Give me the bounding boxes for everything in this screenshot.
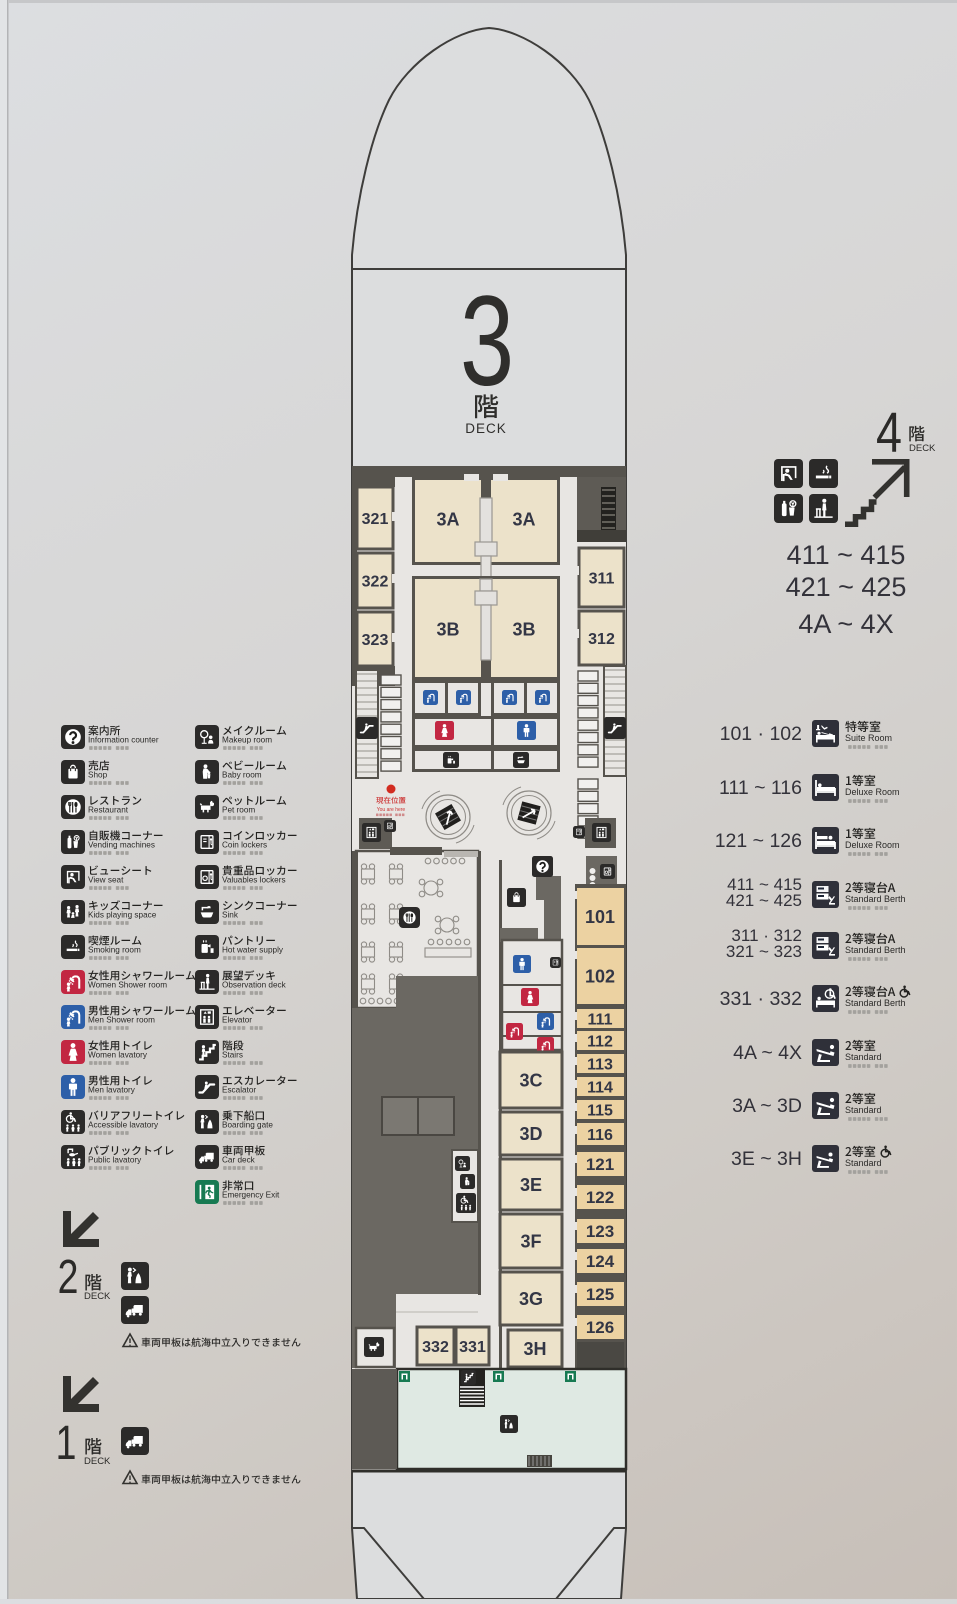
svg-text:3: 3 (460, 270, 514, 413)
svg-text:123: 123 (586, 1222, 614, 1241)
svg-text:Pet room: Pet room (222, 806, 255, 815)
svg-text:Car deck: Car deck (222, 1156, 256, 1165)
svg-text:121 ~ 126: 121 ~ 126 (715, 830, 802, 852)
svg-text:421 ~ 425: 421 ~ 425 (726, 891, 802, 910)
svg-text:3A: 3A (436, 509, 459, 529)
svg-text:Elevator: Elevator (222, 1016, 252, 1025)
svg-text:Men Shower room: Men Shower room (88, 1016, 155, 1025)
svg-text:312: 312 (588, 631, 615, 648)
svg-text:Smoking room: Smoking room (88, 946, 141, 955)
svg-text:3A ~ 3D: 3A ~ 3D (732, 1095, 802, 1117)
svg-text:Information counter: Information counter (88, 736, 159, 745)
svg-text:3H: 3H (523, 1339, 546, 1359)
svg-text:Deluxe Room: Deluxe Room (845, 840, 900, 850)
svg-text:DECK: DECK (909, 443, 936, 454)
svg-text:111 ~ 116: 111 ~ 116 (719, 777, 802, 799)
svg-text:Accessible lavatory: Accessible lavatory (88, 1121, 159, 1130)
svg-text:Boarding gate: Boarding gate (222, 1121, 273, 1130)
svg-text:322: 322 (362, 573, 389, 590)
svg-text:Sink: Sink (222, 911, 239, 920)
svg-text:Makeup room: Makeup room (222, 736, 272, 745)
svg-text:116: 116 (587, 1127, 613, 1144)
svg-text:Hot water supply: Hot water supply (222, 946, 284, 955)
svg-text:115: 115 (587, 1102, 613, 1119)
svg-text:Emergency Exit: Emergency Exit (222, 1191, 280, 1200)
svg-text:Standard: Standard (845, 1158, 882, 1168)
svg-text:3G: 3G (519, 1289, 543, 1309)
svg-text:You are here: You are here (377, 807, 406, 813)
svg-text:101 · 102: 101 · 102 (720, 723, 802, 745)
svg-text:332: 332 (422, 1339, 449, 1356)
svg-text:122: 122 (586, 1188, 614, 1207)
svg-text:323: 323 (362, 632, 389, 649)
svg-text:Valuables lockers: Valuables lockers (222, 876, 286, 885)
svg-text:Standard: Standard (845, 1052, 882, 1062)
svg-text:126: 126 (586, 1318, 614, 1337)
svg-text:4A ~ 4X: 4A ~ 4X (733, 1042, 802, 1064)
svg-text:4A ~ 4X: 4A ~ 4X (798, 609, 893, 639)
svg-text:View seat: View seat (88, 876, 124, 885)
svg-text:Women Shower room: Women Shower room (88, 981, 167, 990)
svg-text:Vending machines: Vending machines (88, 841, 155, 850)
svg-text:Women lavatory: Women lavatory (88, 1051, 148, 1060)
svg-text:Standard Berth: Standard Berth (845, 894, 906, 904)
svg-text:3C: 3C (519, 1070, 542, 1090)
svg-text:Standard: Standard (845, 1105, 882, 1115)
svg-text:3B: 3B (436, 619, 459, 639)
svg-text:113: 113 (587, 1056, 613, 1073)
svg-text:3B: 3B (512, 619, 535, 639)
svg-text:121: 121 (586, 1155, 614, 1174)
svg-text:112: 112 (587, 1033, 613, 1050)
svg-text:DECK: DECK (465, 421, 507, 436)
svg-text:321 ~ 323: 321 ~ 323 (726, 942, 802, 961)
svg-text:331: 331 (459, 1339, 486, 1356)
svg-text:4: 4 (876, 402, 902, 465)
svg-text:102: 102 (585, 966, 615, 986)
svg-text:Suite Room: Suite Room (845, 733, 892, 743)
svg-text:DECK: DECK (84, 1456, 111, 1467)
svg-text:3E: 3E (520, 1175, 542, 1195)
svg-text:Men lavatory: Men lavatory (88, 1086, 136, 1095)
svg-text:3D: 3D (519, 1124, 542, 1144)
svg-text:Observation deck: Observation deck (222, 981, 287, 990)
svg-text:124: 124 (586, 1252, 615, 1271)
svg-text:Restaurant: Restaurant (88, 806, 129, 815)
svg-text:Kids playing space: Kids playing space (88, 911, 157, 920)
svg-text:3E ~ 3H: 3E ~ 3H (731, 1148, 802, 1170)
svg-text:Escalator: Escalator (222, 1086, 256, 1095)
svg-text:DECK: DECK (84, 1291, 111, 1302)
svg-text:114: 114 (587, 1079, 613, 1096)
svg-text:101: 101 (585, 907, 615, 927)
svg-text:321: 321 (362, 511, 389, 528)
svg-text:1: 1 (56, 1417, 77, 1471)
svg-text:Baby room: Baby room (222, 771, 262, 780)
svg-text:3A: 3A (512, 509, 535, 529)
svg-text:311: 311 (589, 570, 615, 587)
svg-text:Standard Berth: Standard Berth (845, 998, 906, 1008)
svg-text:Shop: Shop (88, 771, 108, 780)
svg-text:Coin lockers: Coin lockers (222, 841, 267, 850)
svg-text:Public lavatory: Public lavatory (88, 1156, 142, 1165)
svg-text:Standard Berth: Standard Berth (845, 945, 906, 955)
svg-text:411 ~ 415: 411 ~ 415 (787, 540, 906, 570)
svg-text:3F: 3F (520, 1231, 541, 1251)
svg-text:125: 125 (586, 1285, 614, 1304)
svg-text:2: 2 (58, 1251, 79, 1305)
svg-text:111: 111 (588, 1011, 613, 1028)
svg-text:Stairs: Stairs (222, 1051, 243, 1060)
svg-text:421 ~ 425: 421 ~ 425 (786, 572, 907, 602)
svg-text:Deluxe Room: Deluxe Room (845, 787, 900, 797)
svg-text:331 · 332: 331 · 332 (720, 988, 802, 1010)
